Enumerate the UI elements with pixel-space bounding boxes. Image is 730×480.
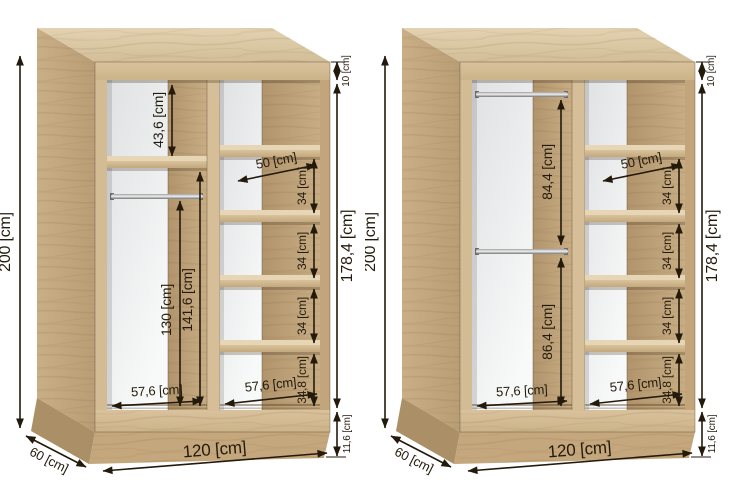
dim-top-gap: 10 [cm] — [696, 55, 717, 87]
frame-right-stile — [685, 80, 695, 410]
frame-top — [95, 62, 330, 80]
inner-wall-grain — [168, 80, 207, 410]
dim-height: 200 [cm] — [0, 56, 20, 428]
back-panel-shadow — [585, 80, 589, 410]
dim-rail-drop-label: 130 [cm] — [158, 284, 174, 336]
hanging-rail-upper — [476, 92, 568, 97]
dim-height: 200 [cm] — [365, 56, 385, 428]
hanging-rail — [111, 194, 203, 199]
interior-top-shadow — [472, 80, 685, 83]
dim-shelf-gap-label: 34 [cm] — [660, 232, 674, 270]
dim-interior-height-label: 178,4 [cm] — [704, 210, 721, 283]
shelf-shadow — [107, 168, 207, 171]
dim-top-gap-label: 10 [cm] — [706, 55, 717, 87]
dim-height-label: 200 [cm] — [0, 212, 14, 272]
inner-wall-grain — [627, 80, 685, 410]
wardrobe-dimension-diagram: 200 [cm] 10 [cm] 178,4 [cm] 11,6 [cm] 12… — [0, 0, 730, 480]
center-divider — [207, 80, 220, 410]
dim-interior-height: 178,4 [cm] — [337, 84, 356, 408]
cabinet-body-right — [396, 28, 695, 464]
dim-top-gap: 10 [cm] — [331, 55, 352, 87]
shelf-top-surface — [107, 156, 207, 161]
dim-shelf-gap-label: 34 [cm] — [660, 167, 674, 205]
center-divider — [572, 80, 585, 410]
dim-interior-height: 178,4 [cm] — [702, 84, 721, 408]
dim-shelf-gap-label: 34 [cm] — [295, 167, 309, 205]
dim-interior-height-label: 178,4 [cm] — [339, 210, 356, 283]
dim-column-width-label: 57,6 [cm] — [496, 382, 548, 400]
dim-plinth-label: 11,6 [cm] — [342, 414, 353, 453]
wardrobe-diagram-right: 200 [cm] 10 [cm] 178,4 [cm] 11,6 [cm] 12… — [365, 0, 730, 480]
frame-left-stile — [95, 80, 107, 410]
inner-wall-grain — [262, 80, 320, 410]
dim-lower-section-label: 86,4 [cm] — [539, 304, 555, 360]
hanging-rail-lower — [476, 249, 568, 254]
dim-top-section-label: 43,6 [cm] — [150, 92, 166, 148]
side-face-grain — [402, 28, 460, 432]
back-panel-left-column — [472, 80, 533, 410]
dim-shelf-gap-label: 34 [cm] — [660, 297, 674, 335]
frame-top — [460, 62, 695, 80]
frame-bottom-grain — [460, 410, 695, 432]
dim-shelf-gap-label: 34 [cm] — [295, 232, 309, 270]
frame-right-stile — [320, 80, 330, 410]
dim-column-width-label: 57,6 [cm] — [131, 382, 183, 400]
back-panel-right-column — [220, 80, 262, 410]
dim-top-gap-label: 10 [cm] — [341, 55, 352, 87]
back-panel-shadow — [472, 80, 477, 410]
shelf — [107, 161, 207, 168]
dim-upper-section-label: 84,4 [cm] — [539, 144, 555, 200]
dim-height-label: 200 [cm] — [365, 212, 379, 272]
side-face-grain — [37, 28, 95, 432]
dim-plinth-label: 11,6 [cm] — [707, 414, 718, 453]
frame-left-stile — [460, 80, 472, 410]
interior-top-shadow — [107, 80, 320, 83]
wardrobe-diagram-left: 200 [cm] 10 [cm] 178,4 [cm] 11,6 [cm] 12… — [0, 0, 365, 480]
dim-shelf-gap-label: 34 [cm] — [295, 297, 309, 335]
back-panel-right-column — [585, 80, 627, 410]
back-panel-shadow — [107, 80, 112, 410]
dim-under-shelf-label: 141,6 [cm] — [179, 268, 195, 331]
back-panel-shadow — [220, 80, 224, 410]
frame-bottom-grain — [95, 410, 330, 432]
